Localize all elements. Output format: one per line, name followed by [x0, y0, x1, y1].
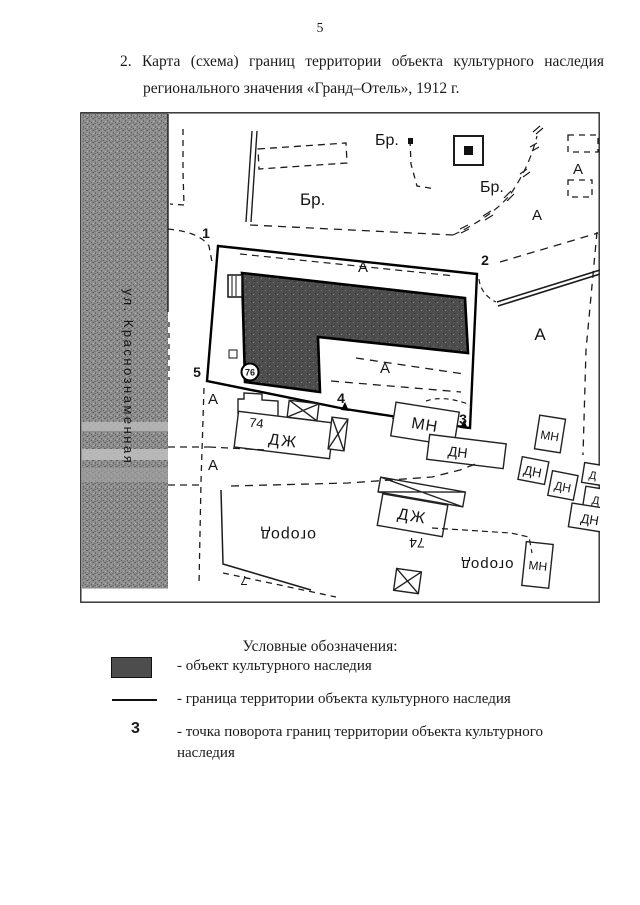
area-label-a: А	[208, 457, 218, 474]
building-label: ДЖ	[267, 431, 298, 451]
area-label-a: А	[358, 259, 368, 276]
hatched-structure	[394, 568, 422, 593]
point-label: 2	[481, 252, 489, 268]
garden-label: огород	[260, 526, 316, 543]
area-label-a: А	[380, 360, 390, 377]
legend-point-label: - точка поворота границ территории объек…	[177, 722, 577, 764]
area-label-br: Бр.	[480, 179, 504, 196]
legend-point-symbol: 3	[131, 720, 140, 738]
street-name-label: ул. Краснознаменная	[121, 289, 136, 465]
point-label: 5	[193, 364, 201, 380]
building-label: ДН	[580, 511, 600, 529]
street-stripe	[82, 468, 168, 482]
building-core-mark	[464, 146, 473, 155]
house-number-label: 74	[409, 535, 425, 551]
building-mn-small: МН	[535, 415, 566, 453]
building-dn-sq2: ДН	[548, 471, 578, 501]
heading-line-1: 2. Карта (схема) границ территории объек…	[120, 52, 604, 72]
legend-boundary-label: - граница территории объекта культурного…	[177, 691, 511, 708]
area-label-br: Бр.	[300, 190, 325, 209]
point-label: 1	[202, 225, 210, 241]
legend-boundary-swatch	[112, 699, 157, 701]
building-label: МН	[539, 428, 560, 445]
building-label: МН	[528, 558, 548, 574]
legend-title: Условные обозначения:	[0, 638, 640, 656]
garden-label: огород	[461, 556, 514, 573]
building-mn-bottom: МН	[522, 542, 553, 589]
legend-object-label: - объект культурного наследия	[177, 658, 372, 675]
area-label-a: А	[208, 391, 218, 408]
heading-line-2: регионального значения «Гранд–Отель», 19…	[143, 80, 460, 98]
street-band: ул. Краснознаменная	[82, 114, 169, 589]
building-d-sq1: Д	[582, 463, 600, 486]
hatched-structure	[287, 400, 319, 421]
parcel-number-label: 7	[240, 573, 247, 588]
house-number-label: 74	[248, 415, 264, 432]
object-number-label: 76	[245, 368, 255, 378]
building-dn-sq1: ДН	[518, 457, 549, 485]
legend-object-swatch	[111, 657, 152, 678]
building-label: ДН	[447, 443, 468, 461]
hatched-structure	[328, 417, 348, 451]
map-svg: ул. Краснознаменная	[80, 112, 600, 603]
area-label-a: А	[573, 161, 583, 178]
page-number: 5	[0, 20, 640, 36]
small-point-mark	[408, 138, 413, 144]
area-label-a: А	[534, 325, 546, 344]
map-figure: ул. Краснознаменная	[80, 112, 600, 603]
area-label-a: А	[532, 207, 542, 224]
area-label-br: Бр.	[375, 132, 399, 149]
object-notch	[229, 350, 237, 358]
point-label: 3	[459, 411, 467, 427]
object-annex	[228, 275, 242, 297]
point-label: 4	[337, 390, 345, 406]
document-page: 5 2. Карта (схема) границ территории объ…	[0, 0, 640, 905]
